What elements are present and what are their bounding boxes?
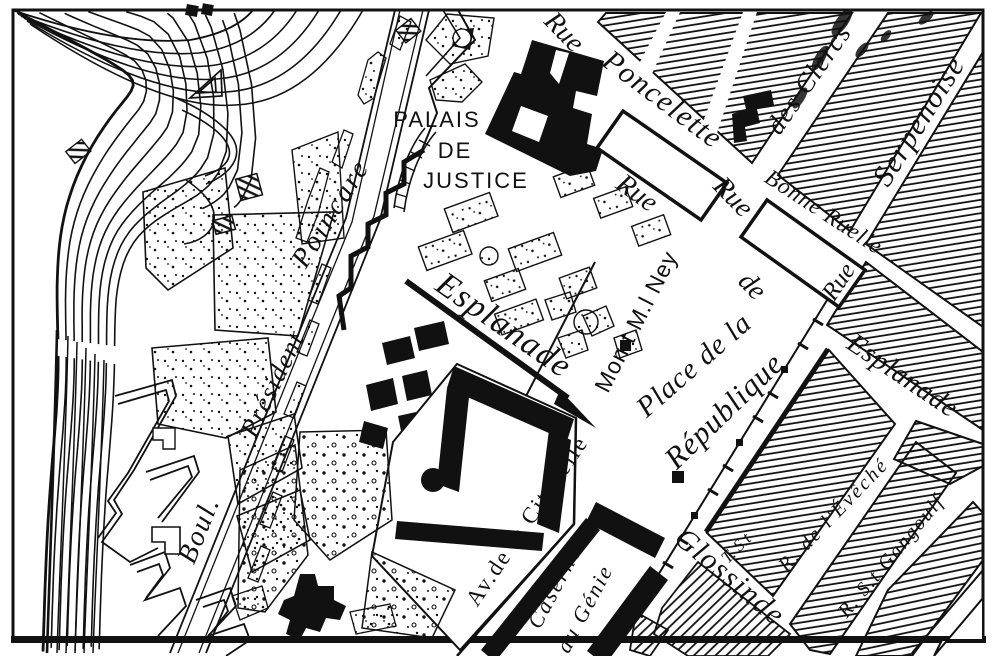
svg-text:JUSTICE: JUSTICE (423, 168, 529, 193)
svg-text:DE: DE (438, 138, 473, 163)
svg-text:PALAIS: PALAIS (393, 107, 480, 132)
